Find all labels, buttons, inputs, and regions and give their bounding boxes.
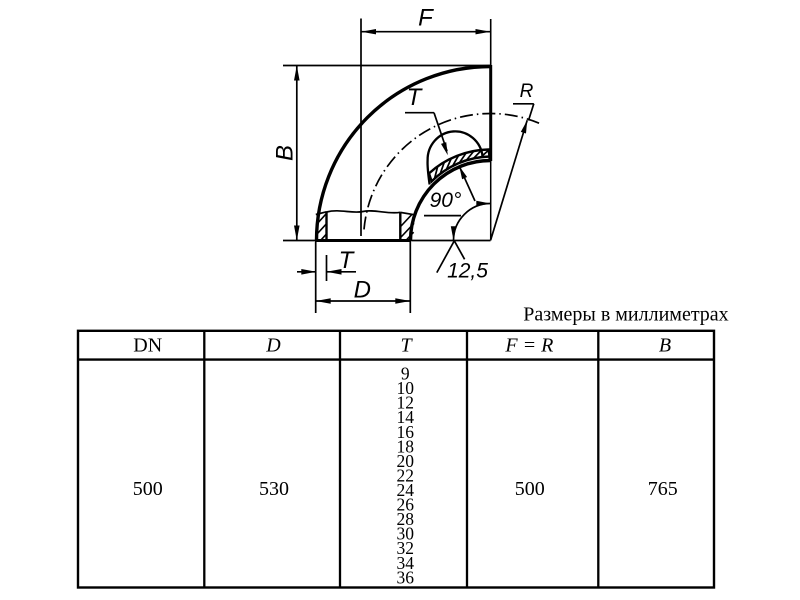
svg-text:T: T xyxy=(407,84,424,111)
svg-text:D: D xyxy=(265,334,281,356)
svg-text:36: 36 xyxy=(397,567,415,587)
svg-text:D: D xyxy=(354,276,371,303)
svg-text:530: 530 xyxy=(259,478,289,500)
svg-text:500: 500 xyxy=(515,478,545,500)
svg-text:B: B xyxy=(659,334,671,356)
svg-text:R: R xyxy=(520,81,534,102)
svg-text:T: T xyxy=(400,334,413,356)
svg-text:90°: 90° xyxy=(430,189,462,212)
svg-text:12,5: 12,5 xyxy=(447,260,488,283)
svg-text:B: B xyxy=(272,145,299,161)
svg-text:Размеры в миллиметрах: Размеры в миллиметрах xyxy=(523,304,728,326)
svg-text:765: 765 xyxy=(648,478,678,500)
svg-text:F: F xyxy=(418,5,434,32)
svg-text:DN: DN xyxy=(133,334,162,356)
svg-text:F = R: F = R xyxy=(504,334,553,356)
svg-text:500: 500 xyxy=(133,478,163,500)
svg-text:T: T xyxy=(339,247,356,274)
